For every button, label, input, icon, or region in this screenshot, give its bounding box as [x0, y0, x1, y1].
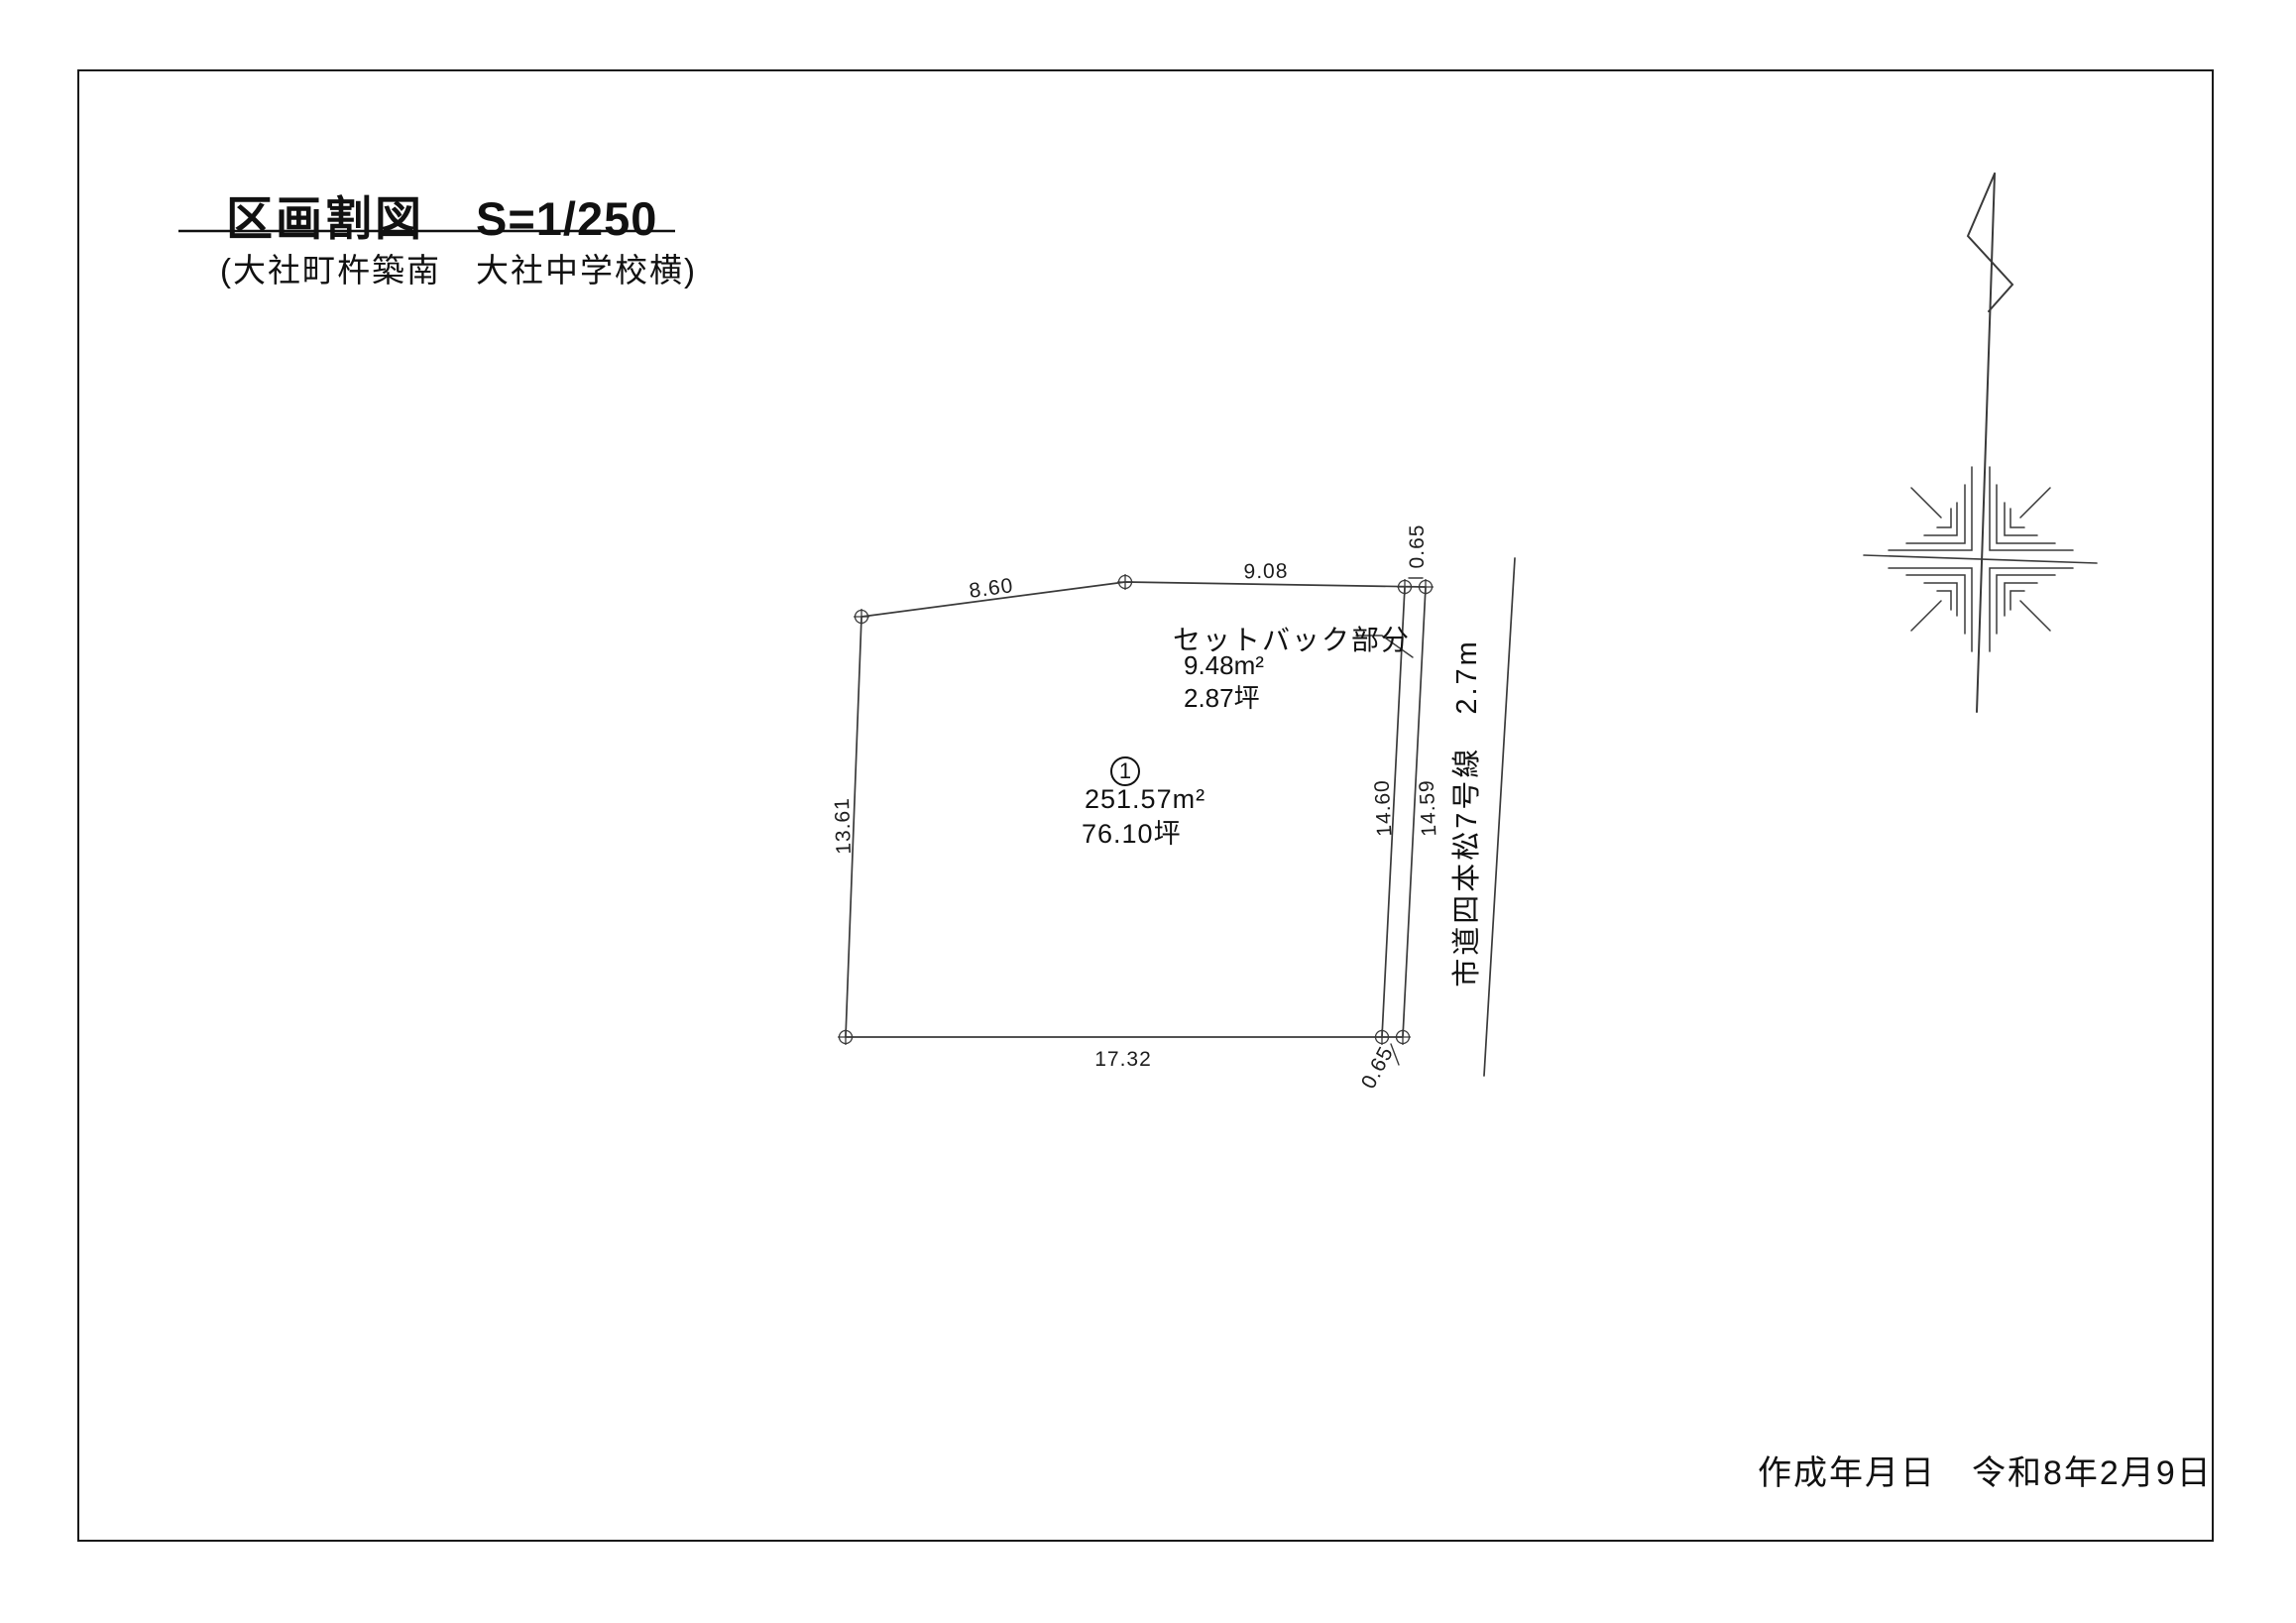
dim-right-edge-inner: 14.60 — [1371, 779, 1398, 838]
dim-setback-width-top: 0.65 — [1406, 524, 1430, 569]
parcel-area-tsubo: 76.10坪 — [1082, 812, 1182, 851]
dim-right-edge-outer: 14.59 — [1416, 779, 1442, 838]
title-row: 区画割図S=1/250 — [226, 180, 657, 249]
survey-drawing-page: { "drawing": { "title": "区画割図", "scale":… — [0, 0, 2296, 1623]
dim-left-edge: 13.61 — [831, 797, 857, 855]
road-label: 市道四本松7号線 2.7m — [1443, 638, 1485, 987]
setback-area-sqm: 9.48m² — [1184, 650, 1264, 681]
dim-bottom-edge: 17.32 — [1094, 1048, 1152, 1072]
setback-area-tsubo: 2.87坪 — [1184, 678, 1260, 715]
drawing-scale: S=1/250 — [476, 192, 657, 245]
footer-row: 作成年月日令和8年2月9日 — [1758, 1446, 2213, 1494]
dim-top-right-edge: 9.08 — [1243, 560, 1288, 585]
created-date-label: 作成年月日 — [1758, 1454, 1936, 1492]
page-title: 区画割図 — [226, 192, 424, 245]
parcel-number-badge: 1 — [1110, 756, 1140, 786]
north-arrow-icon — [1864, 174, 2097, 712]
parcel-area-sqm: 251.57m² — [1085, 784, 1205, 815]
created-date-value: 令和8年2月9日 — [1972, 1454, 2213, 1492]
drawing-subtitle: (大社町杵築南 大社中学校横) — [220, 244, 697, 291]
